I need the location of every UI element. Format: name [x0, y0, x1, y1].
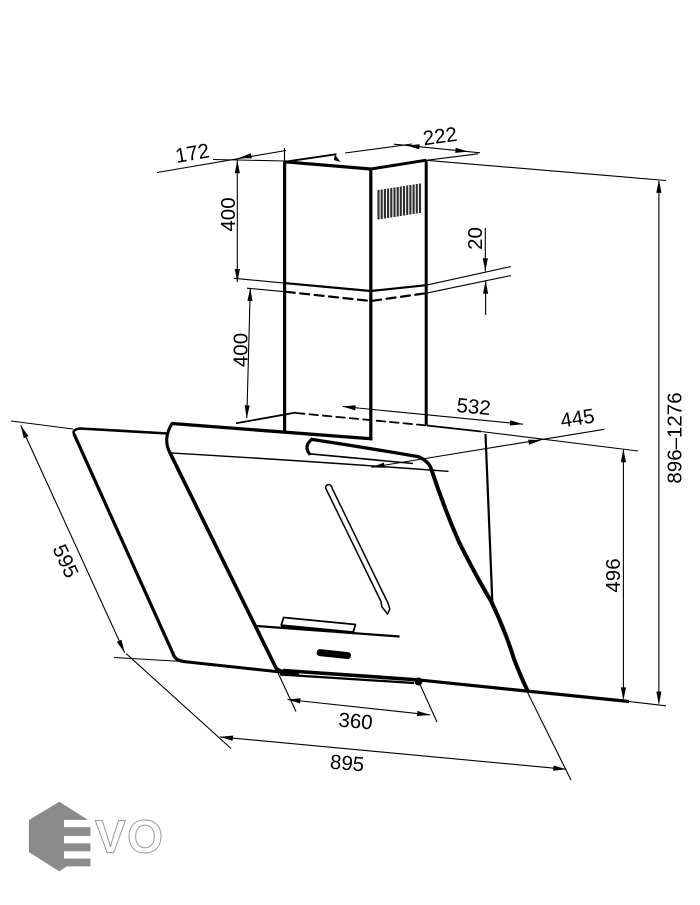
svg-text:445: 445: [559, 405, 596, 433]
svg-text:532: 532: [455, 394, 491, 420]
svg-text:400: 400: [230, 333, 253, 367]
svg-text:595: 595: [48, 541, 83, 582]
svg-text:360: 360: [338, 709, 374, 735]
svg-text:896–1276: 896–1276: [664, 392, 687, 483]
svg-text:400: 400: [217, 197, 240, 231]
svg-text:496: 496: [602, 558, 625, 592]
svg-text:VO: VO: [95, 811, 164, 863]
svg-text:895: 895: [329, 751, 365, 777]
svg-text:172: 172: [174, 139, 212, 168]
svg-text:222: 222: [422, 123, 459, 151]
svg-text:20: 20: [464, 227, 487, 250]
